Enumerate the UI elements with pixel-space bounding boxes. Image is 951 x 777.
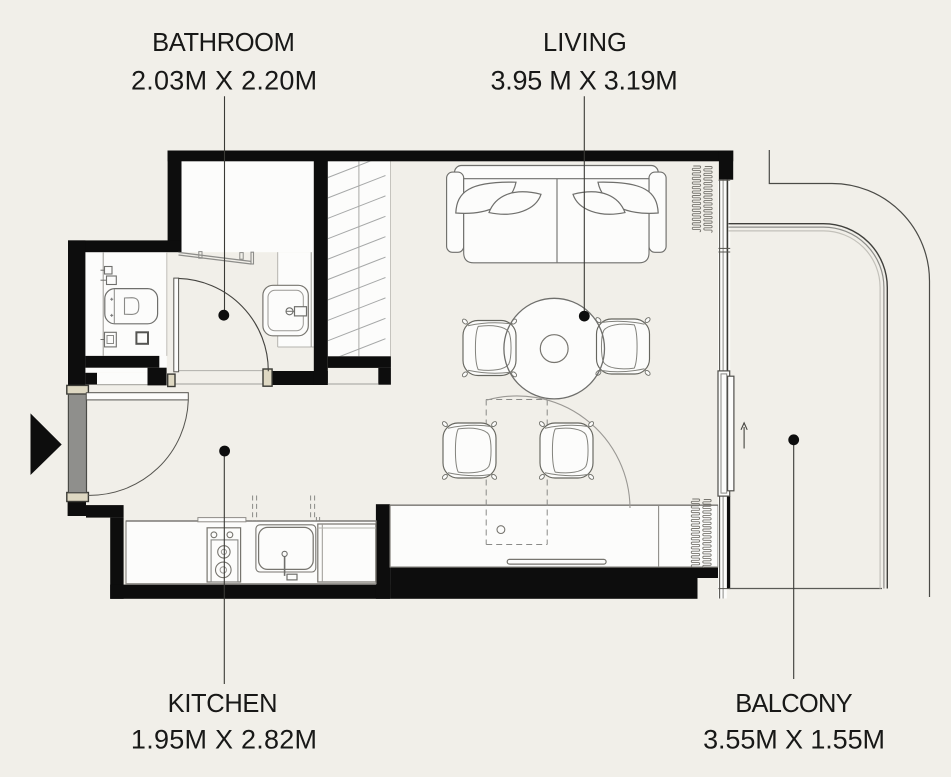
svg-text:BATHROOM: BATHROOM xyxy=(152,29,294,57)
svg-text:1.95M X 2.82M: 1.95M X 2.82M xyxy=(131,725,317,755)
svg-text:2.03M X 2.20M: 2.03M X 2.20M xyxy=(131,65,317,95)
svg-text:3.55M X 1.55M: 3.55M X 1.55M xyxy=(703,725,885,755)
svg-text:LIVING: LIVING xyxy=(543,29,627,57)
svg-text:KITCHEN: KITCHEN xyxy=(168,690,277,718)
svg-text:3.95 M X 3.19M: 3.95 M X 3.19M xyxy=(490,65,677,95)
svg-text:BALCONY: BALCONY xyxy=(735,690,852,718)
